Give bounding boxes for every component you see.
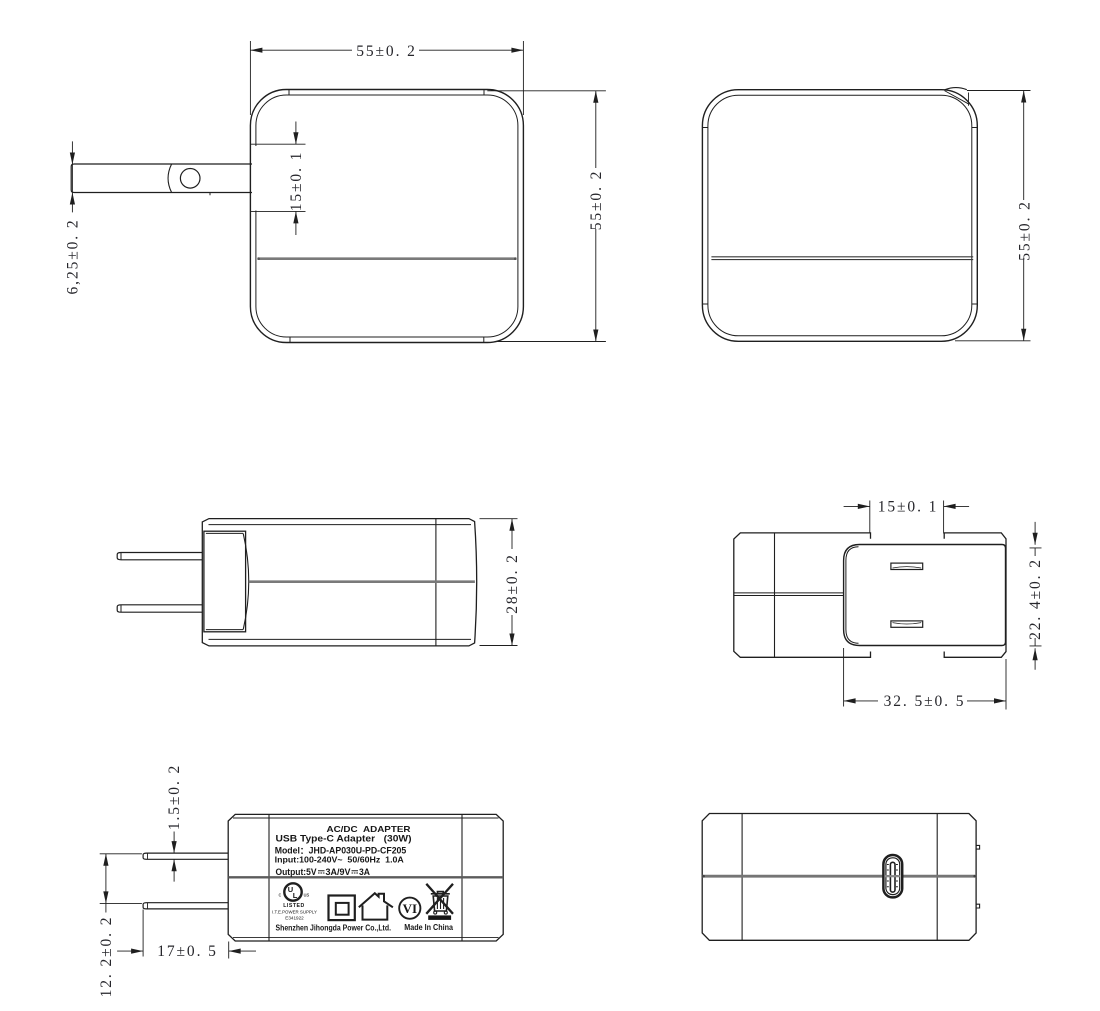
svg-text:3A/9V: 3A/9V: [326, 867, 351, 877]
svg-text:22. 4±0. 2: 22. 4±0. 2: [1027, 558, 1044, 640]
svg-text:E341922: E341922: [285, 916, 304, 921]
svg-text:L: L: [293, 891, 298, 900]
svg-text:USB Type-C Adapter (30W): USB Type-C Adapter (30W): [276, 833, 412, 843]
svg-text:15±0. 1: 15±0. 1: [878, 499, 939, 516]
svg-text:Shenzhen Jihongda Power Co.,Lt: Shenzhen Jihongda Power Co.,Ltd.: [276, 923, 392, 933]
svg-text:3A: 3A: [359, 867, 371, 877]
svg-text:Input:100-240V~ 50/60Hz 1.0A: Input:100-240V~ 50/60Hz 1.0A: [275, 855, 404, 865]
svg-text:55±0. 2: 55±0. 2: [356, 43, 417, 60]
svg-text:LISTED: LISTED: [283, 903, 304, 909]
svg-text:15±0. 1: 15±0. 1: [288, 151, 305, 212]
svg-text:1.5±0. 2: 1.5±0. 2: [166, 764, 183, 830]
svg-text:I.T.E.POWER SUPPLY: I.T.E.POWER SUPPLY: [272, 909, 317, 914]
svg-text:55±0. 2: 55±0. 2: [588, 170, 605, 231]
svg-text:17±0. 5: 17±0. 5: [157, 943, 218, 960]
svg-text:6,25±0. 2: 6,25±0. 2: [64, 219, 81, 295]
svg-text:32. 5±0. 5: 32. 5±0. 5: [884, 693, 966, 710]
svg-text:55±0. 2: 55±0. 2: [1017, 200, 1034, 261]
svg-text:us: us: [304, 893, 310, 899]
svg-text:28±0. 2: 28±0. 2: [504, 553, 521, 614]
svg-text:Output:5V: Output:5V: [276, 867, 317, 877]
svg-text:VI: VI: [403, 901, 417, 916]
svg-text:c: c: [279, 893, 282, 899]
svg-text:12. 2±0. 2: 12. 2±0. 2: [98, 916, 115, 998]
svg-text:Made In China: Made In China: [404, 922, 453, 932]
